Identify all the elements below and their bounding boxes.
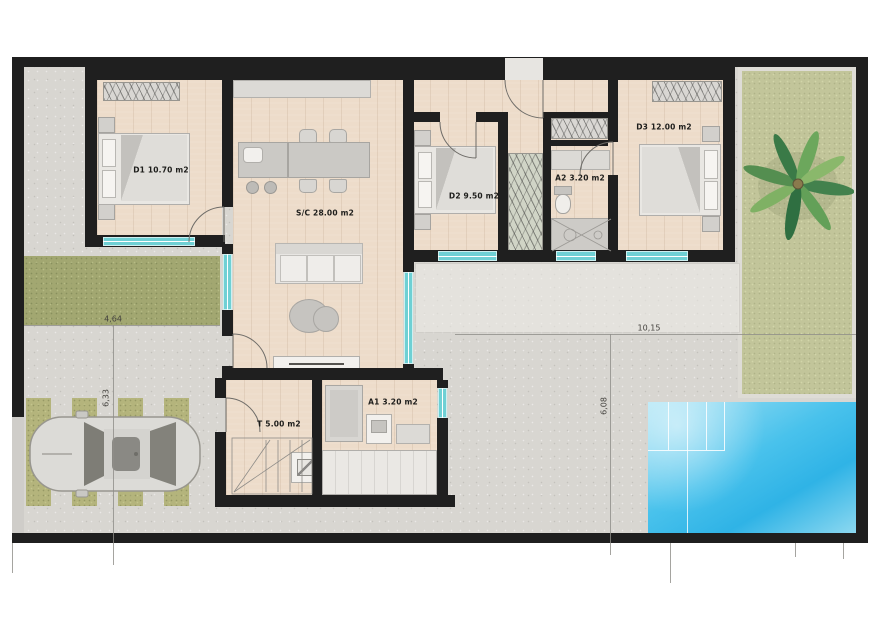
dimension-label-driveway-depth: 6,33 <box>102 389 111 407</box>
dimension-tick <box>843 543 844 559</box>
door-arcs <box>189 80 613 432</box>
room-label-a2: A2 3.20 m2 <box>555 174 605 183</box>
staircase <box>232 438 312 494</box>
floor-plan: D1 10.70 m2 S/C 28.00 m2 D2 9.50 m2 A2 3… <box>0 0 881 623</box>
dimension-label-pool-terrace-depth: 6,08 <box>600 397 609 415</box>
room-label-d1: D1 10.70 m2 <box>133 166 189 175</box>
plan-annotations <box>0 0 881 623</box>
room-label-a1: A1 3.20 m2 <box>368 398 418 407</box>
dimension-line <box>113 325 114 565</box>
room-label-d2: D2 9.50 m2 <box>449 192 499 201</box>
room-label-sc: S/C 28.00 m2 <box>296 209 354 218</box>
room-label-t: T 5.00 m2 <box>257 420 301 429</box>
dimension-label-lawn-width: 4,64 <box>104 315 122 324</box>
dimension-tick <box>12 543 13 573</box>
dimension-line <box>455 334 856 335</box>
dimension-tick <box>670 543 671 583</box>
dimension-label-terrace-width: 10,15 <box>638 324 661 333</box>
dimension-line <box>24 325 220 326</box>
shower-pattern <box>552 219 611 251</box>
dimension-tick <box>795 543 796 557</box>
room-label-d3: D3 12.00 m2 <box>636 123 692 132</box>
dimension-line <box>610 334 611 555</box>
